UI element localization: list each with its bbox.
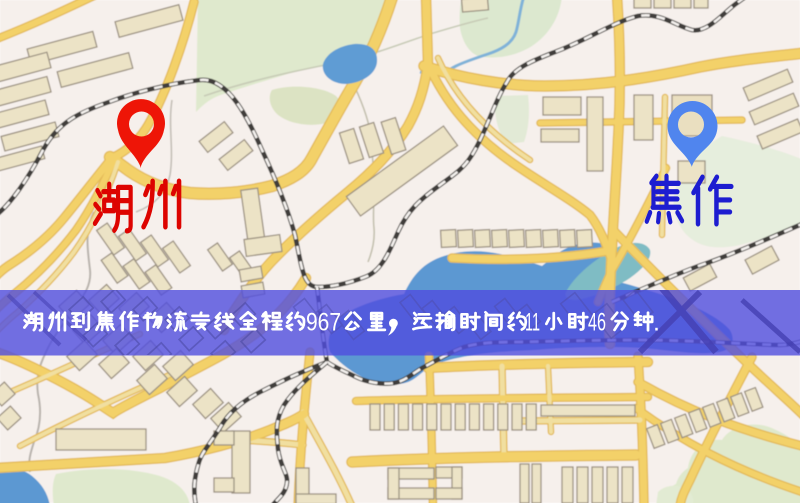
svg-text:46: 46 bbox=[588, 309, 606, 337]
svg-text:967: 967 bbox=[306, 309, 341, 337]
svg-text:11: 11 bbox=[525, 309, 540, 337]
svg-text:.: . bbox=[653, 309, 660, 337]
